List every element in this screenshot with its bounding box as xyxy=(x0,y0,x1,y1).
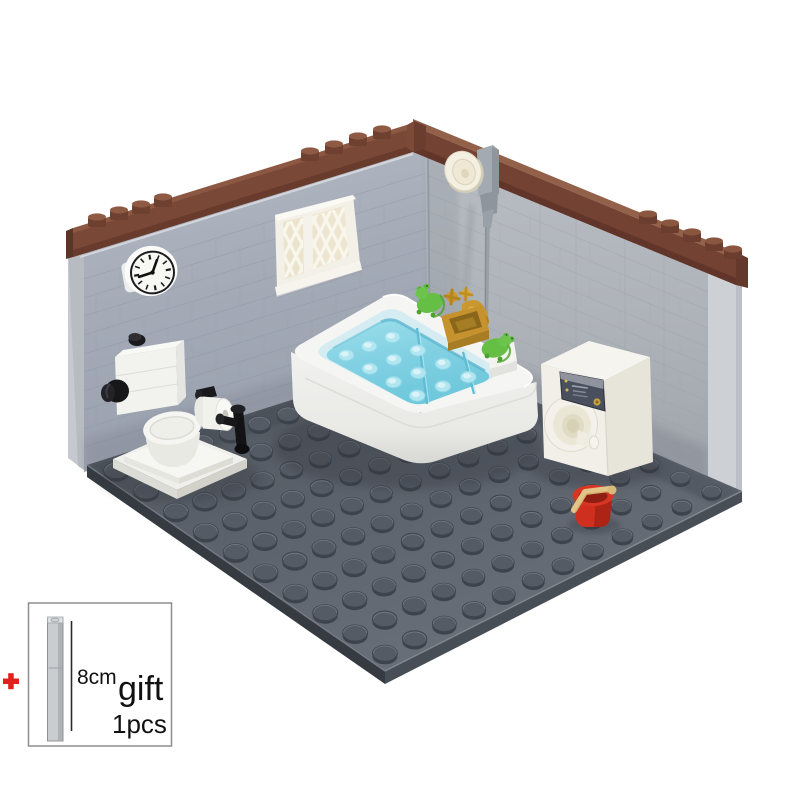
svg-text:8cm: 8cm xyxy=(77,666,117,689)
svg-text:1pcs: 1pcs xyxy=(112,709,167,739)
svg-text:gift: gift xyxy=(118,670,164,708)
